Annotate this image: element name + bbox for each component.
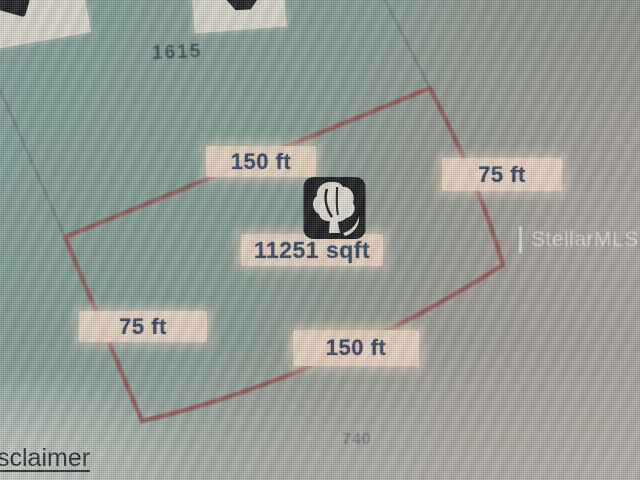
dimension-label-left: 75 ft	[79, 311, 207, 342]
disclaimer-link[interactable]: sclaimer	[0, 444, 90, 473]
dimension-text: 75 ft	[119, 314, 167, 340]
dimension-label-bottom: 150 ft	[293, 330, 419, 366]
lot-number-label: 740	[342, 431, 372, 449]
tree-icon	[303, 176, 366, 240]
parcel-area-text: 11251 sqft	[254, 237, 370, 264]
lot-number-label: 1615	[152, 41, 203, 65]
stellar-mls-watermark: StellarMLS	[519, 226, 639, 253]
parcel-map-view[interactable]: 1615 150 ft 75 ft 75 ft 150 ft 11251 sqf…	[0, 0, 640, 480]
neighbor-lot-line	[382, 0, 430, 88]
dimension-text: 150 ft	[326, 335, 386, 361]
neighbor-lot-line	[0, 76, 65, 237]
tree-marker[interactable]	[303, 176, 366, 240]
dimension-label-right: 75 ft	[442, 158, 562, 191]
watermark-text: StellarMLS	[531, 228, 639, 252]
dimension-label-top: 150 ft	[206, 146, 316, 177]
dimension-text: 75 ft	[478, 162, 526, 188]
dimension-text: 150 ft	[231, 149, 291, 175]
watermark-logo-fragment	[519, 226, 522, 253]
